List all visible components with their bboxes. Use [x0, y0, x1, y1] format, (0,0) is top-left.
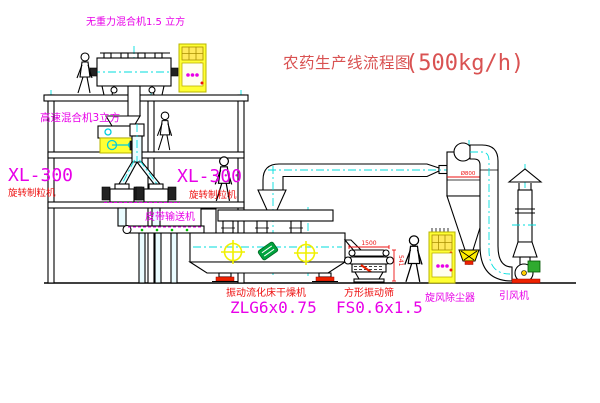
label-granulator-right-model: XL-300 — [177, 166, 242, 187]
floor-slab-top — [44, 95, 248, 101]
label-granulator-right-name: 旋转制粒机 — [189, 189, 237, 201]
control-cabinet-right — [429, 228, 455, 283]
spring-mount — [316, 277, 334, 281]
label-high-speed-mixer: 高速混合机3立方 — [40, 111, 120, 124]
label-fan: 引风机 — [499, 289, 529, 302]
label-belt-conveyor: 皮带输送机 — [145, 210, 195, 223]
page-title-capacity: (500kg/h) — [405, 51, 524, 76]
label-gravity-free-mixer: 无重力混合机1.5 立方 — [86, 15, 185, 28]
label-dryer-model: ZLG6x0.75 — [230, 298, 317, 317]
dryer-plenum — [218, 210, 333, 221]
floor-slab-mid — [48, 152, 244, 158]
label-granulator-left-model: XL-300 — [8, 165, 73, 186]
control-cabinet-top — [179, 44, 206, 92]
process-flow-drawing: 无重力混合机1.5 立方 农药生产线流程图 (500kg/h) 高速混合机3立方… — [0, 0, 600, 403]
dim-cyclone-diameter: Ø800 — [461, 170, 476, 177]
label-cyclone: 旋风除尘器 — [425, 291, 475, 304]
fan-motor — [528, 261, 540, 272]
fan-base — [512, 279, 540, 283]
indicator-dots — [436, 264, 440, 268]
spring-mount — [216, 277, 234, 281]
cad-diagram: 无重力混合机1.5 立方 农药生产线流程图 (500kg/h) 高速混合机3立方… — [0, 0, 600, 403]
dim-sieve-height: 541 — [397, 255, 404, 267]
indicator-dots — [186, 73, 190, 77]
vortex-finder — [454, 143, 472, 161]
page-title: 农药生产线流程图 — [283, 54, 411, 72]
label-granulator-left-name: 旋转制粒机 — [8, 187, 56, 199]
dim-sieve-width: 1500 — [361, 240, 376, 247]
label-sieve-model: FS0.6x1.5 — [336, 298, 423, 317]
belt-conveyor — [123, 226, 204, 234]
